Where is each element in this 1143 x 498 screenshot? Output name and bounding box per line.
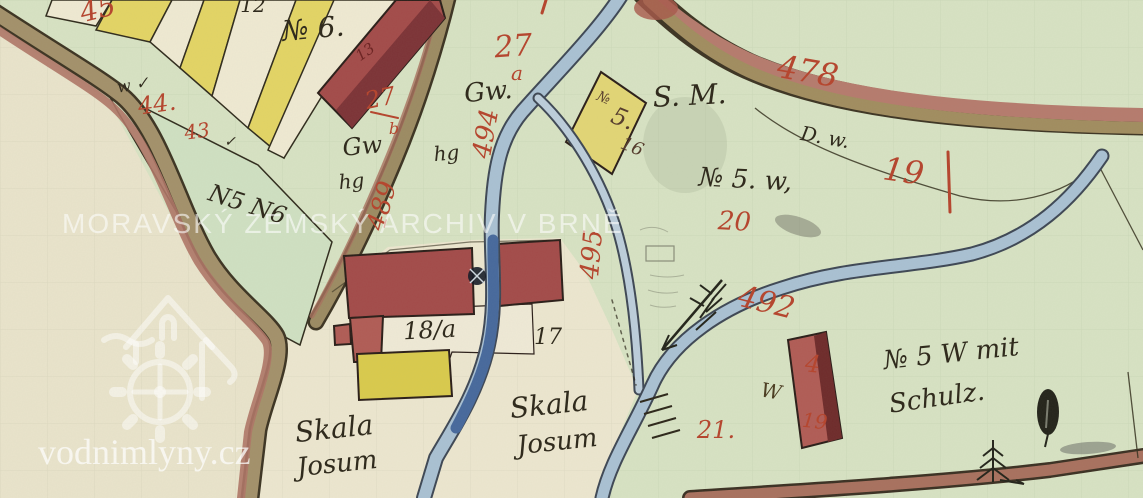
- cadastral-map-scan: 45 44. 43 27 a 27 b 489 494 478 19 495 4…: [0, 0, 1143, 498]
- paper-grain: [0, 0, 1143, 498]
